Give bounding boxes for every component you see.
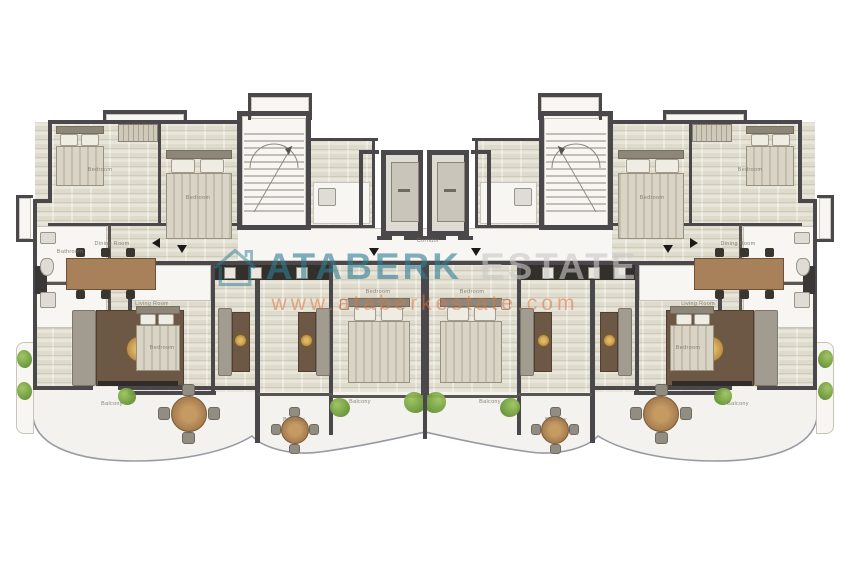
- room-label: Bedroom: [738, 167, 762, 173]
- room-label: Bedroom: [150, 345, 174, 351]
- room-label: Balcony: [479, 399, 501, 405]
- room-label: Bedroom: [88, 167, 112, 173]
- labels-layer: BedroomBedroomBathroomDining RoomLiving …: [0, 0, 850, 566]
- room-label: Dining Room: [720, 241, 755, 247]
- room-label: Balcony: [283, 417, 305, 423]
- room-label: Bathroom: [57, 249, 83, 255]
- room-label: Bedroom: [366, 289, 390, 295]
- room-label: Living Room: [681, 301, 715, 307]
- room-label: Bedroom: [186, 195, 210, 201]
- room-label: Bedroom: [676, 345, 700, 351]
- room-label: Balcony: [349, 399, 371, 405]
- room-label: Balcony: [101, 401, 123, 407]
- room-label: Balcony: [545, 417, 567, 423]
- room-label: Dining Room: [94, 241, 129, 247]
- room-label: Balcony: [727, 401, 749, 407]
- room-label: Bedroom: [640, 195, 664, 201]
- room-label: Bedroom: [460, 289, 484, 295]
- room-label: Living Room: [135, 301, 169, 307]
- room-label: Corridor: [417, 238, 439, 244]
- floorplan-canvas: BedroomBedroomBathroomDining RoomLiving …: [0, 0, 850, 566]
